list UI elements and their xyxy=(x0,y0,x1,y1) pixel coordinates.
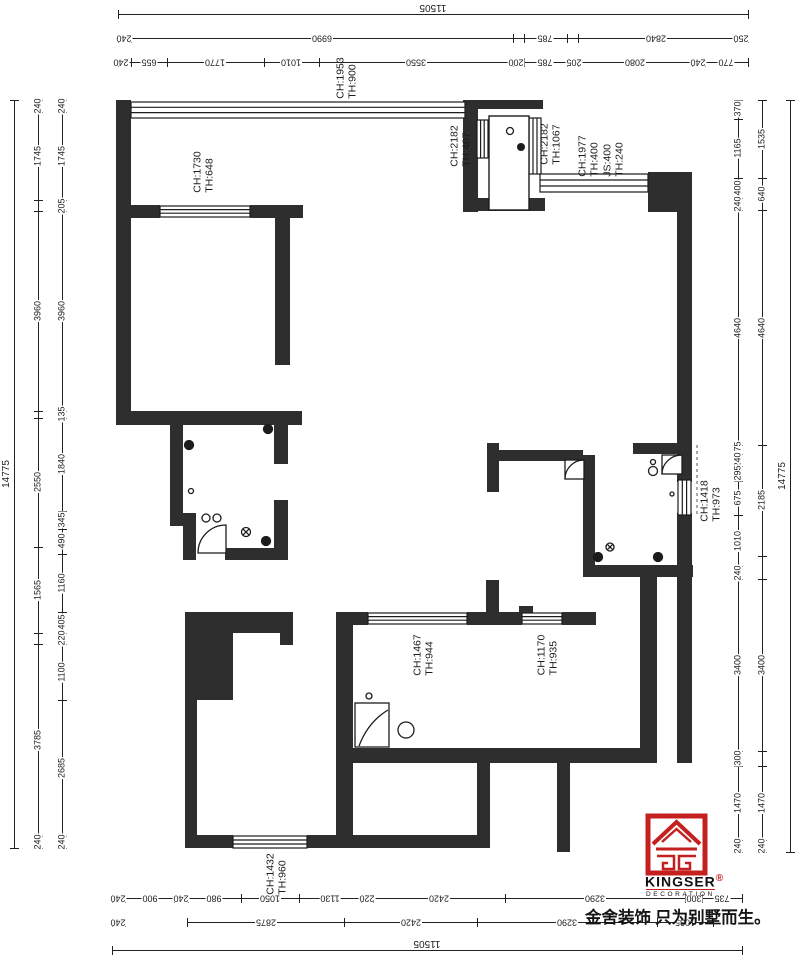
dimension-value: 1100 xyxy=(58,661,67,682)
dimension-value: 2185 xyxy=(758,489,767,511)
label-ch1432: CH:1432TH:960 xyxy=(265,853,290,894)
dimension-value: 2080 xyxy=(624,58,646,67)
dimension-value: 3400 xyxy=(734,654,743,676)
dimension-tick xyxy=(34,633,43,634)
dimension-value: 1565 xyxy=(34,579,43,601)
label-ch1418: CH:1418TH:973 xyxy=(699,480,724,521)
dimension-value: 2840 xyxy=(645,34,667,43)
dimension-tick xyxy=(758,178,767,179)
dimension-tick xyxy=(112,946,113,955)
room-label-line: TH:400 xyxy=(589,135,601,176)
room-label-line: TH:900 xyxy=(347,57,359,98)
dimension-value: 1010 xyxy=(280,58,302,67)
room-label-line: CH:1170 xyxy=(536,635,548,676)
dimension-value: 11505 xyxy=(412,938,441,948)
dimension-value: 220 xyxy=(58,629,67,646)
dimension-value: 2875 xyxy=(255,918,277,927)
dimension-tick xyxy=(786,100,795,101)
dimension-tick xyxy=(264,58,265,67)
dimension-value: 405 xyxy=(58,613,67,630)
dimension-value: 1160 xyxy=(58,572,67,593)
dimension-tick xyxy=(58,700,67,701)
dimension-value: 240 xyxy=(734,195,743,212)
registered-mark: ® xyxy=(716,873,724,884)
dimension-tick xyxy=(748,10,749,19)
dimension-value: 655 xyxy=(140,58,157,67)
dimension-value: 1745 xyxy=(34,145,43,167)
dimension-tick xyxy=(758,210,767,211)
dimension-tick xyxy=(299,894,300,903)
dimension-tick xyxy=(758,445,767,446)
dimension-value: 4640 xyxy=(734,317,743,339)
room-label-line: TH:648 xyxy=(204,151,216,192)
room-label-line: JS:400 xyxy=(601,135,613,176)
dimension-tick xyxy=(513,34,514,43)
dimension-value: 14775 xyxy=(2,459,12,489)
label-ch2182b: CH:2182TH:1067 xyxy=(539,123,564,164)
dimension-value: 300 xyxy=(734,749,743,766)
dimension-tick xyxy=(477,918,478,927)
dimension-tick xyxy=(742,946,743,955)
dimension-line xyxy=(118,14,748,15)
dimension-value: 11505 xyxy=(418,2,447,12)
room-label-line: CH:1432 xyxy=(265,853,277,894)
dimension-value: 490 xyxy=(58,532,67,549)
label-ch1953: CH:1953TH:900 xyxy=(335,57,360,98)
dimension-tick xyxy=(758,556,767,557)
dimension-value: 675 xyxy=(734,489,743,506)
dimension-tick xyxy=(734,119,743,120)
dimension-value: 2550 xyxy=(34,471,43,493)
dimension-value: 3960 xyxy=(58,300,67,322)
dimension-line xyxy=(112,950,742,951)
dimension-line xyxy=(14,100,15,848)
dimension-value: 785 xyxy=(536,34,553,43)
label-ch1730: CH:1730TH:648 xyxy=(192,151,217,192)
dimension-value: 900 xyxy=(141,894,158,903)
dimension-tick xyxy=(578,34,579,43)
dimension-value: 640 xyxy=(758,185,767,202)
room-label-line: CH:2182 xyxy=(539,123,551,164)
dimension-value: 220 xyxy=(358,894,375,903)
dimension-tick xyxy=(344,918,345,927)
dimension-value: 240 xyxy=(172,894,189,903)
room-label-line: TH:407 xyxy=(461,125,473,166)
dimension-value: 135 xyxy=(58,405,67,422)
dimension-tick xyxy=(319,58,320,67)
dimension-value: 240 xyxy=(109,918,126,927)
dimension-value: 345 xyxy=(58,511,67,528)
dimension-value: 1130 xyxy=(319,894,340,903)
dimension-value: 400 xyxy=(734,179,743,196)
dimension-value: 295 xyxy=(734,464,743,481)
dimension-value: 240 xyxy=(115,34,132,43)
dimension-tick xyxy=(758,766,767,767)
dimension-tick xyxy=(758,100,767,101)
logo-subtitle: DECORATION xyxy=(646,889,715,898)
dimension-tick xyxy=(758,579,767,580)
dimension-value: 1165 xyxy=(734,137,743,158)
dimension-tick xyxy=(34,211,43,212)
dimension-value: 4640 xyxy=(758,317,767,339)
company-tagline: 金舍装饰 只为别墅而生。 xyxy=(585,904,790,928)
dimension-value: 785 xyxy=(536,58,553,67)
dimension-value: 770 xyxy=(717,58,734,67)
dimension-tick xyxy=(118,10,119,19)
room-label-line: TH:240 xyxy=(613,135,625,176)
dimension-value: 240 xyxy=(34,97,43,114)
dimension-tick xyxy=(34,644,43,645)
room-label-line: CH:1977 xyxy=(576,135,588,176)
dimension-tick xyxy=(34,418,43,419)
dimension-value: 6990 xyxy=(311,34,333,43)
dimension-value: 1840 xyxy=(58,453,67,475)
room-label-line: TH:973 xyxy=(711,480,723,521)
dimension-tick xyxy=(34,547,43,548)
label-ch1170: CH:1170TH:935 xyxy=(536,635,561,676)
dimension-value: 370 xyxy=(734,100,743,117)
dimension-tick xyxy=(241,894,242,903)
dimension-tick xyxy=(58,529,67,530)
floor-plan-canvas: 1150524069907852840250240655177010103550… xyxy=(0,0,800,964)
room-label-line: CH:2182 xyxy=(449,125,461,166)
dimension-value: 14775 xyxy=(778,461,788,491)
dimension-value: 240 xyxy=(34,833,43,850)
dimension-value: 2420 xyxy=(400,918,422,927)
dimension-value: 1010 xyxy=(734,530,743,552)
dimension-tick xyxy=(505,894,506,903)
dimension-tick xyxy=(187,918,188,927)
room-label-line: TH:960 xyxy=(277,853,289,894)
dimension-value: 200 xyxy=(507,58,524,67)
dimension-value: 2420 xyxy=(428,894,450,903)
room-label-line: CH:1467 xyxy=(412,634,424,675)
branding-block: KINGSER® DECORATION 金舍装饰 只为别墅而生。 xyxy=(585,808,790,933)
label-ch1467: CH:1467TH:944 xyxy=(412,634,437,675)
dimension-value: 250 xyxy=(732,34,749,43)
dimension-value: 240 xyxy=(689,58,706,67)
dimension-value: 3290 xyxy=(556,918,578,927)
room-label-line: TH:944 xyxy=(424,634,436,675)
dimension-value: 240 xyxy=(109,894,126,903)
dimension-tick xyxy=(734,515,743,516)
dimension-value: 240 xyxy=(58,833,67,850)
dimension-tick xyxy=(758,751,767,752)
dimension-value: 240 xyxy=(58,97,67,114)
logo-wordmark: KINGSER® xyxy=(645,873,724,890)
dimension-tick xyxy=(524,34,525,43)
label-ch2182a: CH:2182TH:407 xyxy=(449,125,474,166)
dimension-tick xyxy=(58,554,67,555)
dimension-tick xyxy=(748,58,749,67)
dimension-value: 980 xyxy=(205,894,222,903)
dimension-value: 3960 xyxy=(34,300,43,322)
dimension-tick xyxy=(34,200,43,201)
label-ch1977: CH:1977TH:400JS:400TH:240 xyxy=(576,135,626,176)
dimension-tick xyxy=(10,100,19,101)
room-label-line: TH:1067 xyxy=(551,123,563,164)
dimension-value: 240 xyxy=(734,564,743,581)
dimension-value: 1745 xyxy=(58,145,67,167)
room-label-line: TH:935 xyxy=(548,635,560,676)
dimension-value: 2685 xyxy=(58,757,67,779)
dimension-value: 3550 xyxy=(405,58,427,67)
dimension-tick xyxy=(167,58,168,67)
dimension-tick xyxy=(34,411,43,412)
dimension-value: 205 xyxy=(565,58,582,67)
dimension-value: 3400 xyxy=(758,654,767,676)
dimension-value: 1050 xyxy=(259,894,281,903)
dimension-value: 1535 xyxy=(758,128,767,150)
dimension-value: 205 xyxy=(58,197,67,214)
dimension-value: 1770 xyxy=(204,58,226,67)
dimension-tick xyxy=(567,34,568,43)
room-label-line: CH:1730 xyxy=(192,151,204,192)
dimension-value: 3785 xyxy=(34,729,43,751)
dimension-line xyxy=(790,100,791,852)
room-label-line: CH:1418 xyxy=(699,480,711,521)
dimension-tick xyxy=(10,848,19,849)
dimension-value: 240 xyxy=(112,58,129,67)
dimension-tick xyxy=(131,58,132,67)
room-label-line: CH:1953 xyxy=(335,57,347,98)
dimension-line xyxy=(762,100,763,852)
